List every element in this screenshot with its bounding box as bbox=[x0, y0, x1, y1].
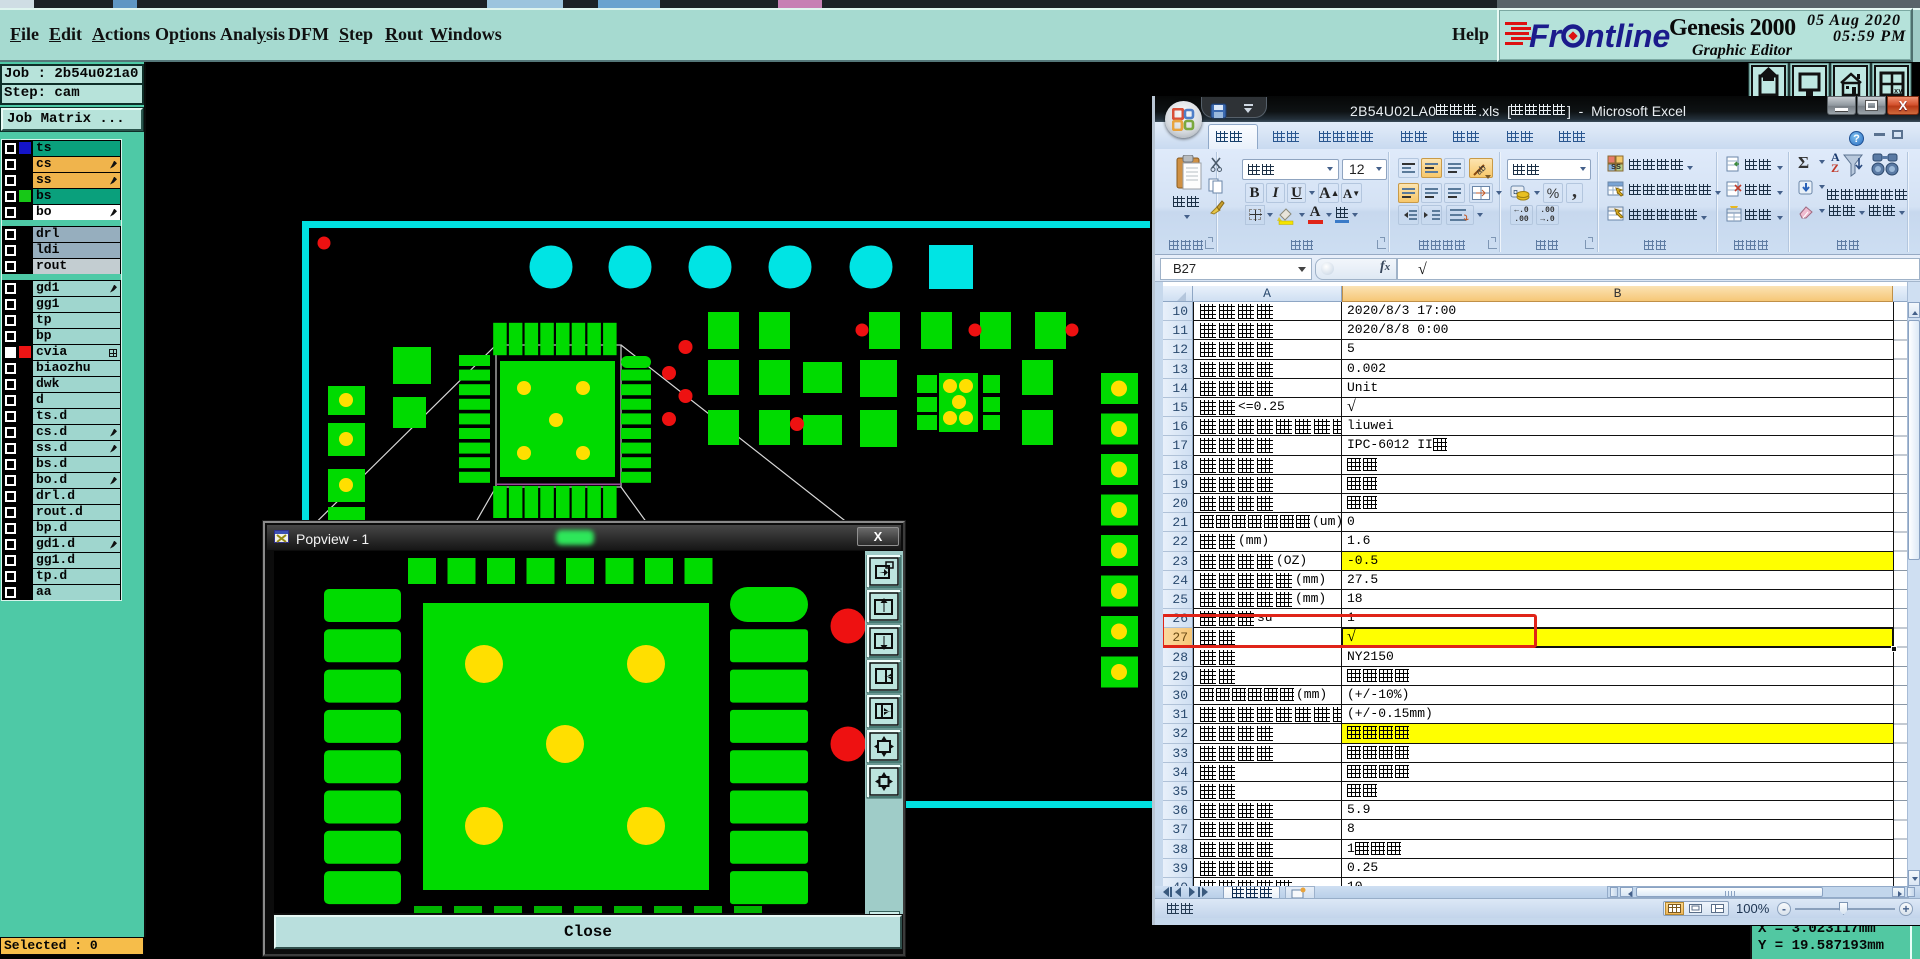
svg-text:xy: xy bbox=[1894, 88, 1903, 96]
svg-text:Fr: Fr bbox=[1529, 18, 1563, 54]
svg-text:ntline: ntline bbox=[1585, 18, 1670, 54]
svg-text:ss: ss bbox=[1611, 161, 1621, 171]
